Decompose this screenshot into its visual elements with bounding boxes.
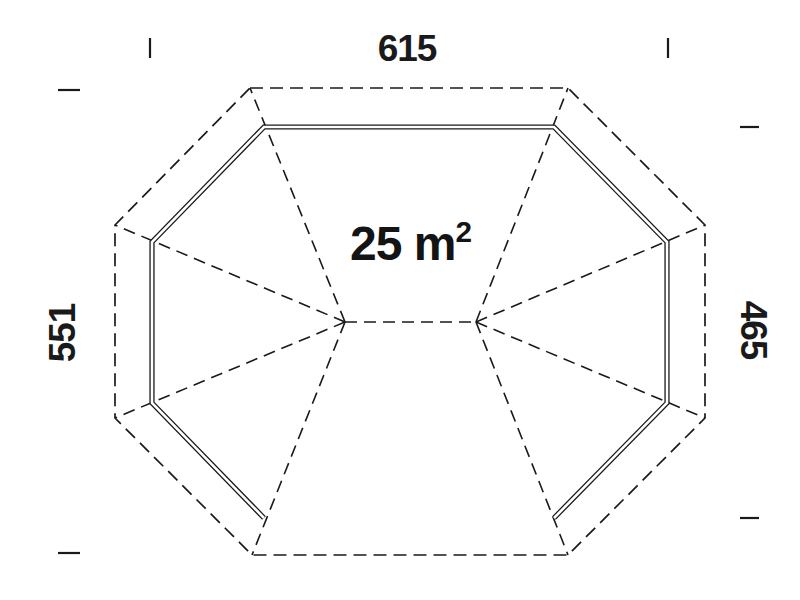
dimension-left-height-label: 551: [44, 304, 81, 363]
gazebo-floor-plan: 615 551 465 25 m2: [0, 0, 800, 600]
dimension-right-height-label: 465: [735, 301, 772, 360]
area-value: 25 m: [350, 217, 455, 270]
area-superscript: 2: [455, 217, 472, 247]
hip-lines-right: [476, 88, 705, 555]
area-label: 25 m2: [350, 220, 472, 268]
dimension-ticks: [58, 38, 759, 553]
floor-plan-drawing: [0, 0, 800, 600]
dimension-width-label: 615: [378, 30, 437, 67]
